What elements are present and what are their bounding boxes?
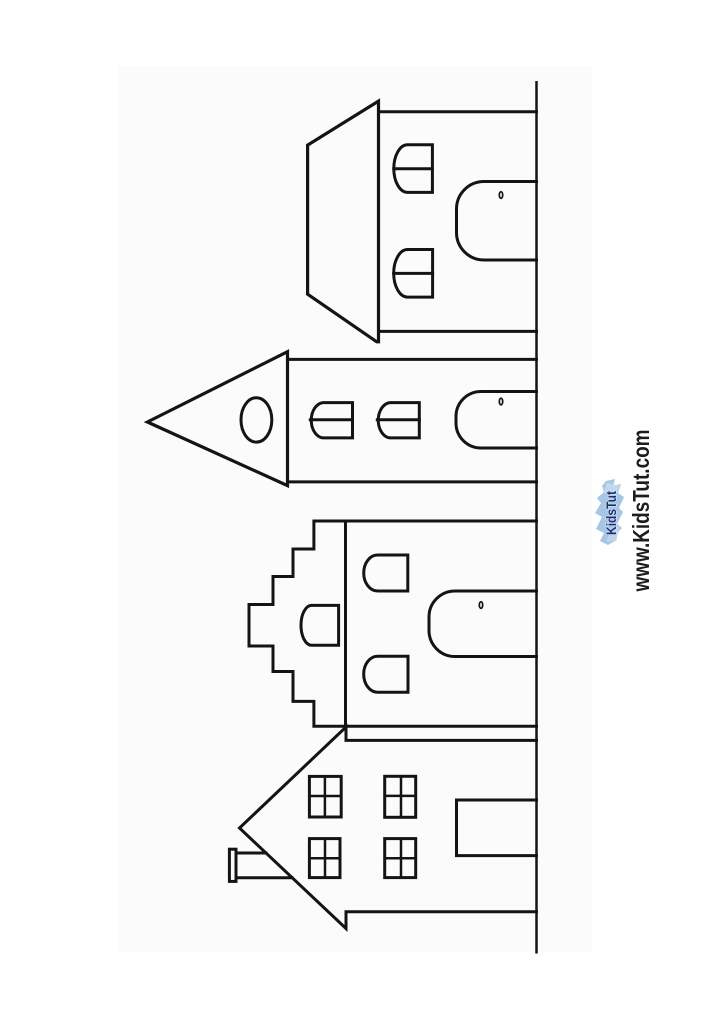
svg-text:KidsTut: KidsTut — [603, 491, 619, 535]
svg-text:www.KidsTut.com: www.KidsTut.com — [628, 430, 654, 593]
